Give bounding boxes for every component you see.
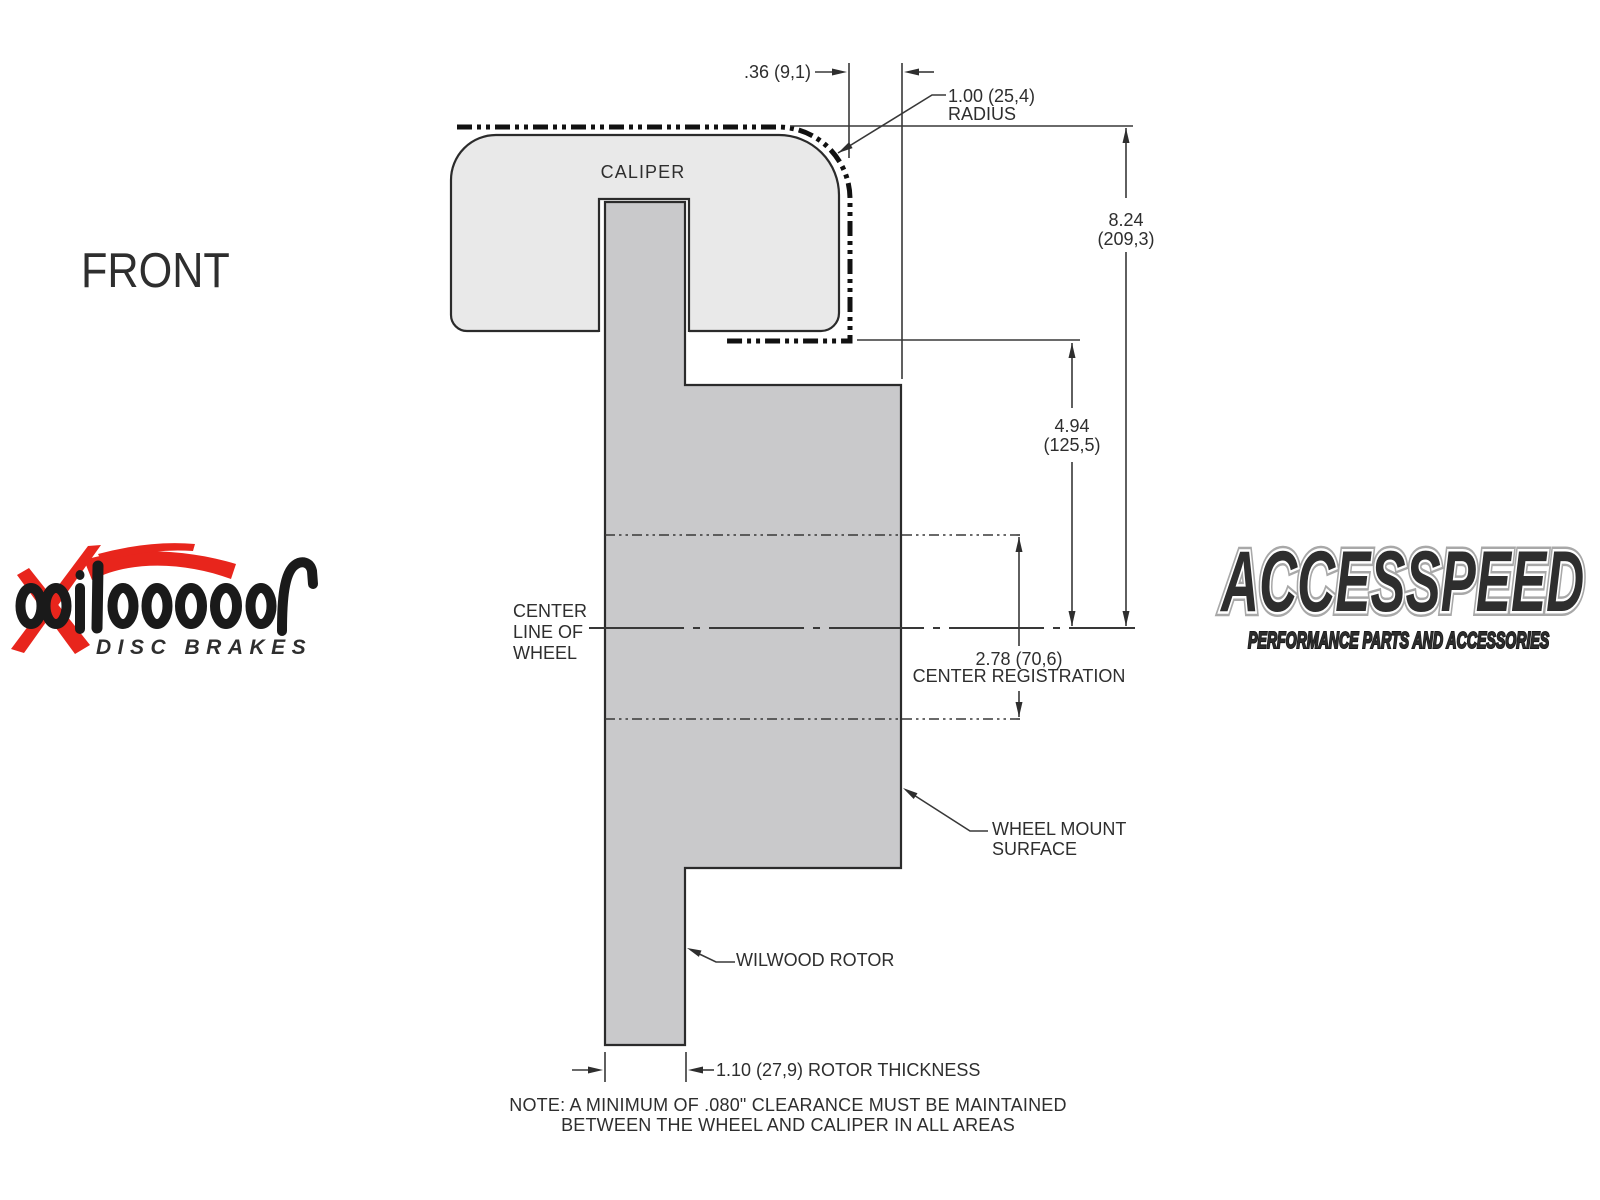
svg-text:BETWEEN THE WHEEL AND CALIPER: BETWEEN THE WHEEL AND CALIPER IN ALL ARE… <box>561 1115 1015 1135</box>
svg-text:DISC BRAKES: DISC BRAKES <box>96 636 312 659</box>
svg-text:WHEEL MOUNT: WHEEL MOUNT <box>992 819 1126 839</box>
svg-text:RADIUS: RADIUS <box>948 104 1016 124</box>
svg-text:1.00 (25,4): 1.00 (25,4) <box>948 86 1035 106</box>
svg-text:SURFACE: SURFACE <box>992 839 1077 859</box>
svg-text:PERFORMANCE PARTS AND ACCESSOR: PERFORMANCE PARTS AND ACCESSORIES <box>1248 629 1549 654</box>
svg-text:1.10 (27,9) ROTOR THICKNESS: 1.10 (27,9) ROTOR THICKNESS <box>716 1060 980 1080</box>
svg-text:CENTER REGISTRATION: CENTER REGISTRATION <box>913 666 1126 686</box>
svg-text:WHEEL: WHEEL <box>513 643 577 663</box>
svg-text:4.94: 4.94 <box>1054 416 1089 436</box>
svg-text:(209,3): (209,3) <box>1097 229 1154 249</box>
svg-text:NOTE: A MINIMUM OF .080" CLEAR: NOTE: A MINIMUM OF .080" CLEARANCE MUST … <box>509 1095 1066 1115</box>
svg-text:8.24: 8.24 <box>1108 210 1143 230</box>
svg-text:FRONT: FRONT <box>81 242 230 297</box>
svg-text:ACCESSPEED: ACCESSPEED <box>1220 534 1585 630</box>
svg-text:(125,5): (125,5) <box>1043 435 1100 455</box>
svg-text:CENTER: CENTER <box>513 601 587 621</box>
svg-text:.36 (9,1): .36 (9,1) <box>744 62 811 82</box>
svg-text:CALIPER: CALIPER <box>601 162 686 182</box>
svg-text:LINE OF: LINE OF <box>513 622 583 642</box>
svg-text:WILWOOD ROTOR: WILWOOD ROTOR <box>736 950 894 970</box>
